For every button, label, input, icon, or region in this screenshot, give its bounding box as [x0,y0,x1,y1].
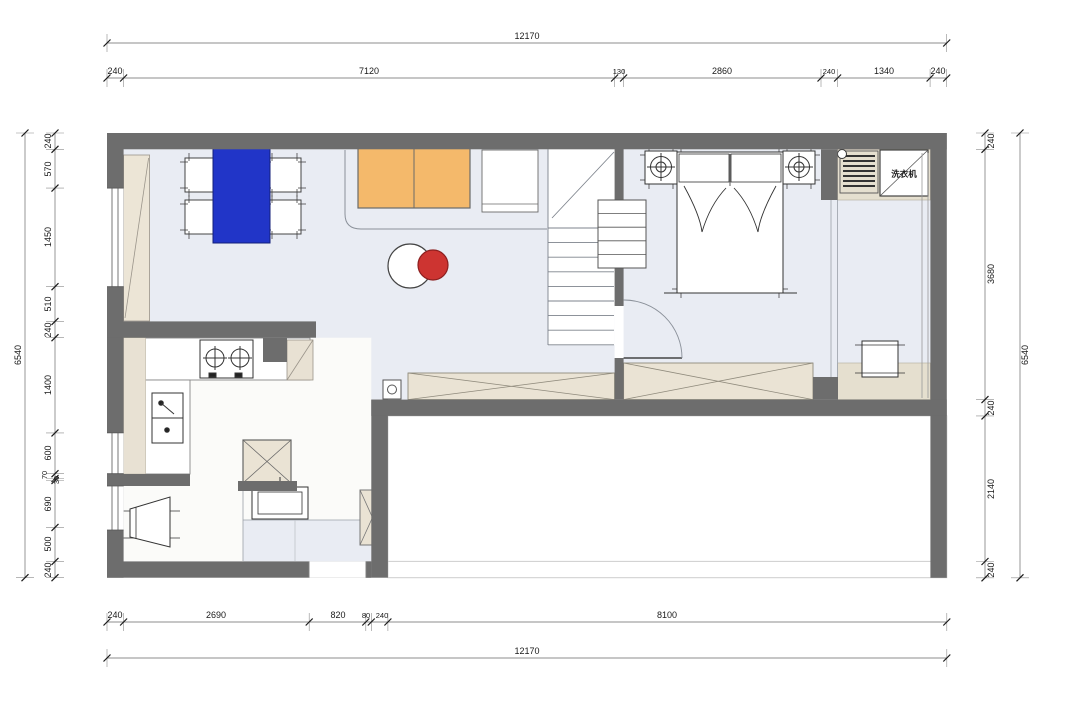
window-left-1 [107,188,124,287]
dim-bottom-seg: 240 [376,611,389,620]
dining-chair [268,200,301,234]
dim-bottom-seg: 8100 [657,610,677,620]
dim-left-seg: 30 [52,476,61,484]
dim-right-seg: 240 [986,400,996,415]
dim-left-seg: 240 [43,133,53,148]
dim-bottom-seg: 240 [107,610,122,620]
pier-wardrobe [813,377,838,400]
entry-opening [309,561,366,577]
floor-plan-canvas: 洗衣机 [0,0,1080,714]
wall-kitchen-north [107,321,316,337]
floor-plan-drawing: 洗衣机 [0,0,1080,714]
dim-bottom-total: 12170 [514,646,539,656]
floor-bath-corridor [243,520,371,561]
dim-left-seg: 570 [43,161,53,176]
side-table [482,150,538,212]
wall-inner-east [371,400,388,578]
dim-left-seg: 510 [43,296,53,311]
stove [200,340,253,378]
pier-kitchen-corner [263,338,287,362]
pier-entry [366,561,372,577]
bedroom-wardrobe [624,363,813,400]
dim-top-seg: 2860 [712,66,732,76]
dim-left-seg: 1400 [43,375,53,395]
dim-left-seg: 500 [43,536,53,551]
utility-table [855,341,905,377]
wall-stair-partition-c [615,358,624,400]
dim-right-total: 6540 [1020,345,1030,365]
dim-bottom-seg: 820 [330,610,345,620]
dim-left-total: 6540 [13,345,23,365]
wall-stair-partition-b [615,268,624,306]
dim-top-seg: 130 [613,67,626,76]
bed-pillow [679,154,729,182]
dim-left-seg: 1450 [43,227,53,247]
dim-top-seg: 7120 [359,66,379,76]
dim-top-total: 12170 [514,31,539,41]
wall-top [107,133,947,149]
kitchen-sink [152,393,183,443]
wall-right [930,133,946,578]
floor-box [383,380,401,399]
flue-duct [287,340,313,380]
dim-top-seg: 1340 [874,66,894,76]
dim-left-seg: 240 [43,322,53,337]
dim-left-seg: 240 [43,562,53,577]
nightstand-left [645,151,677,184]
dim-bottom-seg: 80 [362,611,370,620]
wall-stair-partition-a [615,149,624,200]
washing-machine-label: 洗衣机 [891,169,917,179]
dim-right-seg: 240 [986,133,996,148]
dim-top-seg: 240 [107,66,122,76]
hall-cabinet [124,155,150,321]
kitchen-windowsill [124,338,146,474]
dim-right-seg: 240 [986,562,996,577]
dim-right-seg: 3680 [986,264,996,284]
bed [664,152,797,293]
wall-south [371,400,946,416]
dim-top-seg: 240 [823,67,836,76]
dining-chair [268,158,301,192]
dim-left-seg: 70 [40,471,49,479]
dining-table [213,148,270,243]
window-left-2 [107,433,124,474]
stove-knob [235,373,242,377]
coffee-table-red-top [418,250,448,280]
dim-bottom-seg: 2690 [206,610,226,620]
nightstand-right [783,151,815,184]
corridor-wardrobe [408,373,615,400]
sofa [358,148,470,208]
bed-pillow [731,154,781,182]
shaft-box [598,200,646,268]
washing-machine: 洗衣机 [880,150,928,196]
dim-top-seg: 240 [930,66,945,76]
void-open-area [388,416,947,578]
fridge [243,440,291,483]
dim-left-seg: 690 [43,496,53,511]
wall-bath-partition [123,474,190,486]
dim-left-seg: 600 [43,445,53,460]
pier-bedroom-utility [821,149,838,200]
radiator [838,150,879,194]
pier-basin-north [238,481,297,491]
window-left-3 [107,486,124,530]
dim-right-seg: 2140 [986,479,996,499]
stove-knob [209,373,216,377]
